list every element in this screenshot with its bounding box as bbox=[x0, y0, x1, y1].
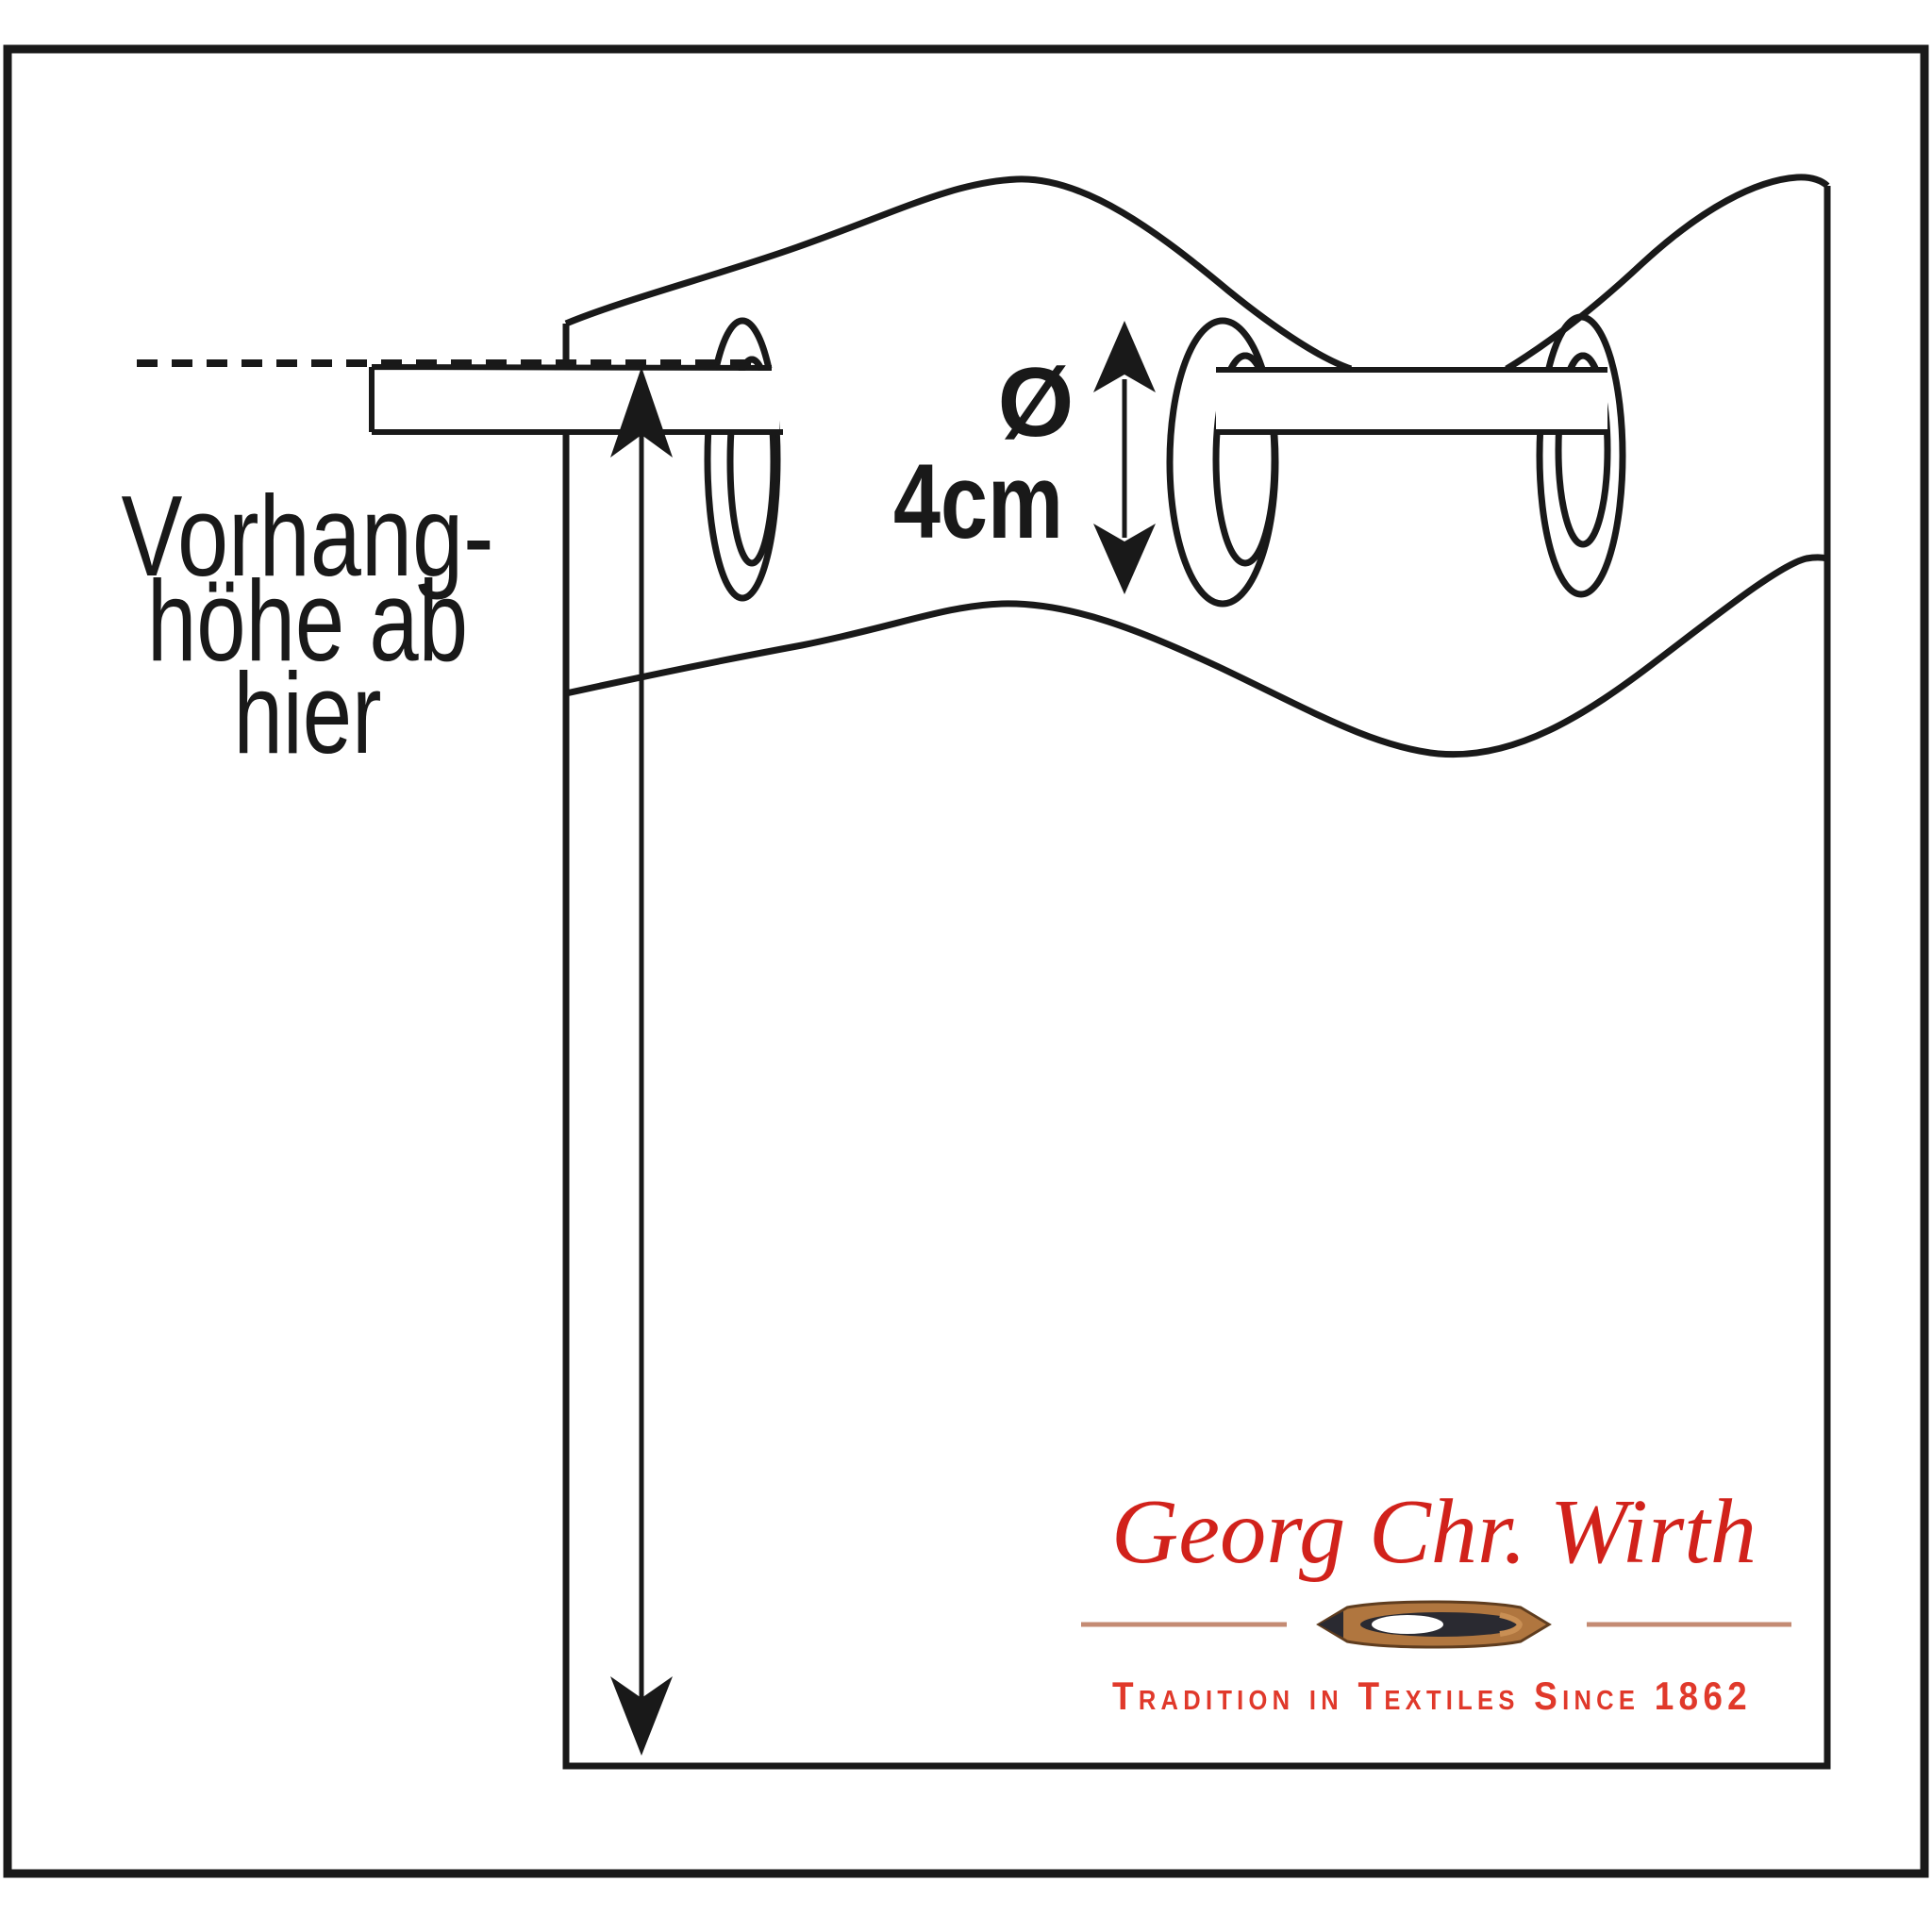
shuttle-tip-shading bbox=[1319, 1611, 1343, 1638]
brand-logo: Georg Chr. Wirth Tradition in Textiles S… bbox=[1081, 1481, 1791, 1718]
diameter-value: 4cm bbox=[893, 442, 1063, 560]
rod-right-fill bbox=[1216, 370, 1607, 432]
rod-left-fill bbox=[372, 367, 779, 432]
curtain-measurement-diagram: Vorhang- höhe ab hier Ø 4cm Georg Chr. W… bbox=[0, 0, 1932, 1932]
curtain-top-edge-right bbox=[1507, 177, 1827, 369]
measurement-label: Vorhang- höhe ab hier bbox=[122, 472, 494, 777]
brand-tagline: Tradition in Textiles Since 1862 bbox=[1112, 1674, 1752, 1718]
curtain-rod-right-segment bbox=[1216, 370, 1607, 432]
diameter-symbol: Ø bbox=[998, 348, 1074, 458]
measurement-label-line3: hier bbox=[234, 649, 382, 777]
diameter-annotation: Ø 4cm bbox=[893, 348, 1074, 560]
shuttle-eye bbox=[1372, 1615, 1443, 1634]
brand-name: Georg Chr. Wirth bbox=[1111, 1481, 1757, 1582]
curtain-height-arrow bbox=[610, 367, 673, 1756]
diagram-canvas: Vorhang- höhe ab hier Ø 4cm Georg Chr. W… bbox=[0, 0, 1932, 1932]
curtain-rod-left-segment bbox=[372, 367, 783, 432]
weaving-shuttle-icon bbox=[1319, 1602, 1549, 1647]
diameter-arrow bbox=[1093, 321, 1156, 594]
outer-border bbox=[8, 49, 1924, 1874]
